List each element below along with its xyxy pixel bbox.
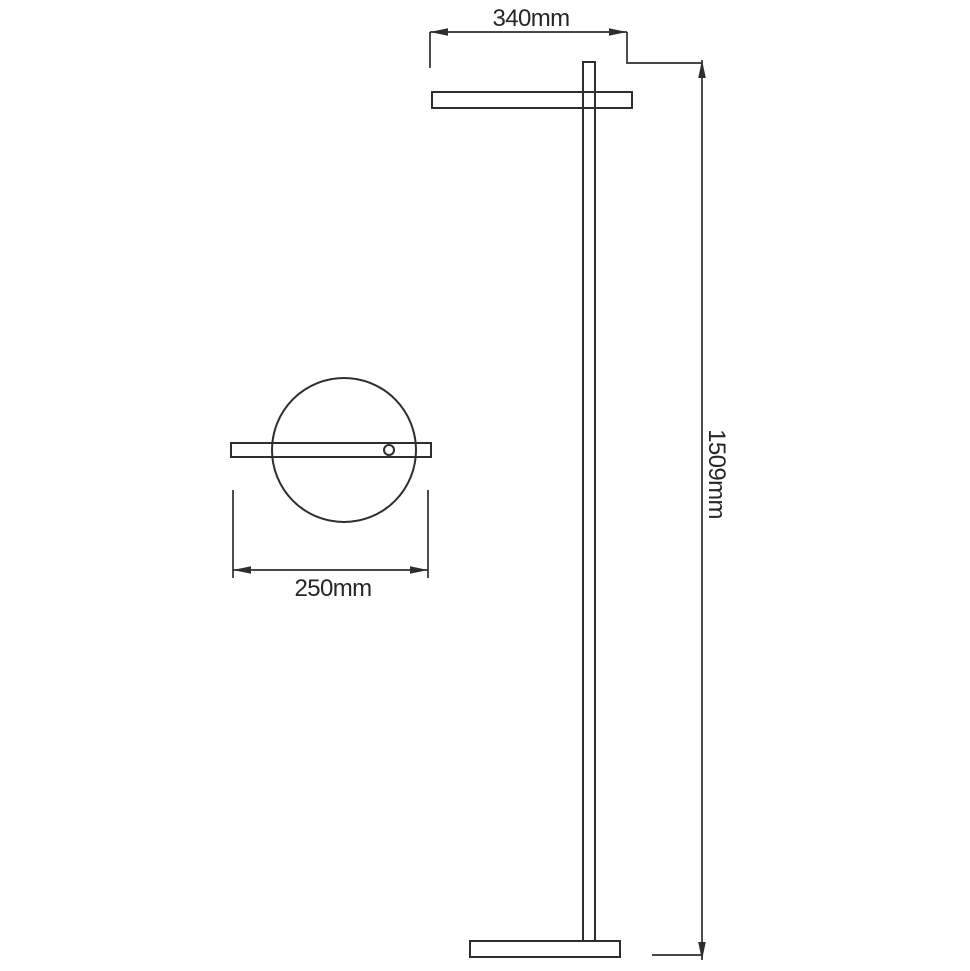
lamp-technical-drawing: 340mm 1509mm 250mm [0,0,970,971]
lamp-base [470,941,620,957]
dimension-label-top-view-width: 250mm [294,575,371,602]
drawing-canvas: 340mm 1509mm 250mm [0,0,970,971]
top-view [231,378,431,522]
arrow-down-icon [698,942,706,960]
arrow-left-icon [430,28,448,36]
lamp-head-bar [432,92,632,108]
front-view [432,62,632,957]
dimension-label-head-width: 340mm [492,5,569,32]
cable-hole [384,445,394,455]
arrow-left-icon [233,566,251,574]
dimension-label-overall-height: 1509mm [703,429,730,519]
lamp-head-bar-top-view [231,443,431,457]
extension-connector-right [627,32,702,63]
arrow-right-icon [609,28,627,36]
dimension-head-width: 340mm [430,5,702,68]
arrow-right-icon [410,566,428,574]
dimension-overall-height: 1509mm [652,60,730,960]
dimension-top-view-width: 250mm [233,490,428,602]
lamp-pole [583,62,595,941]
